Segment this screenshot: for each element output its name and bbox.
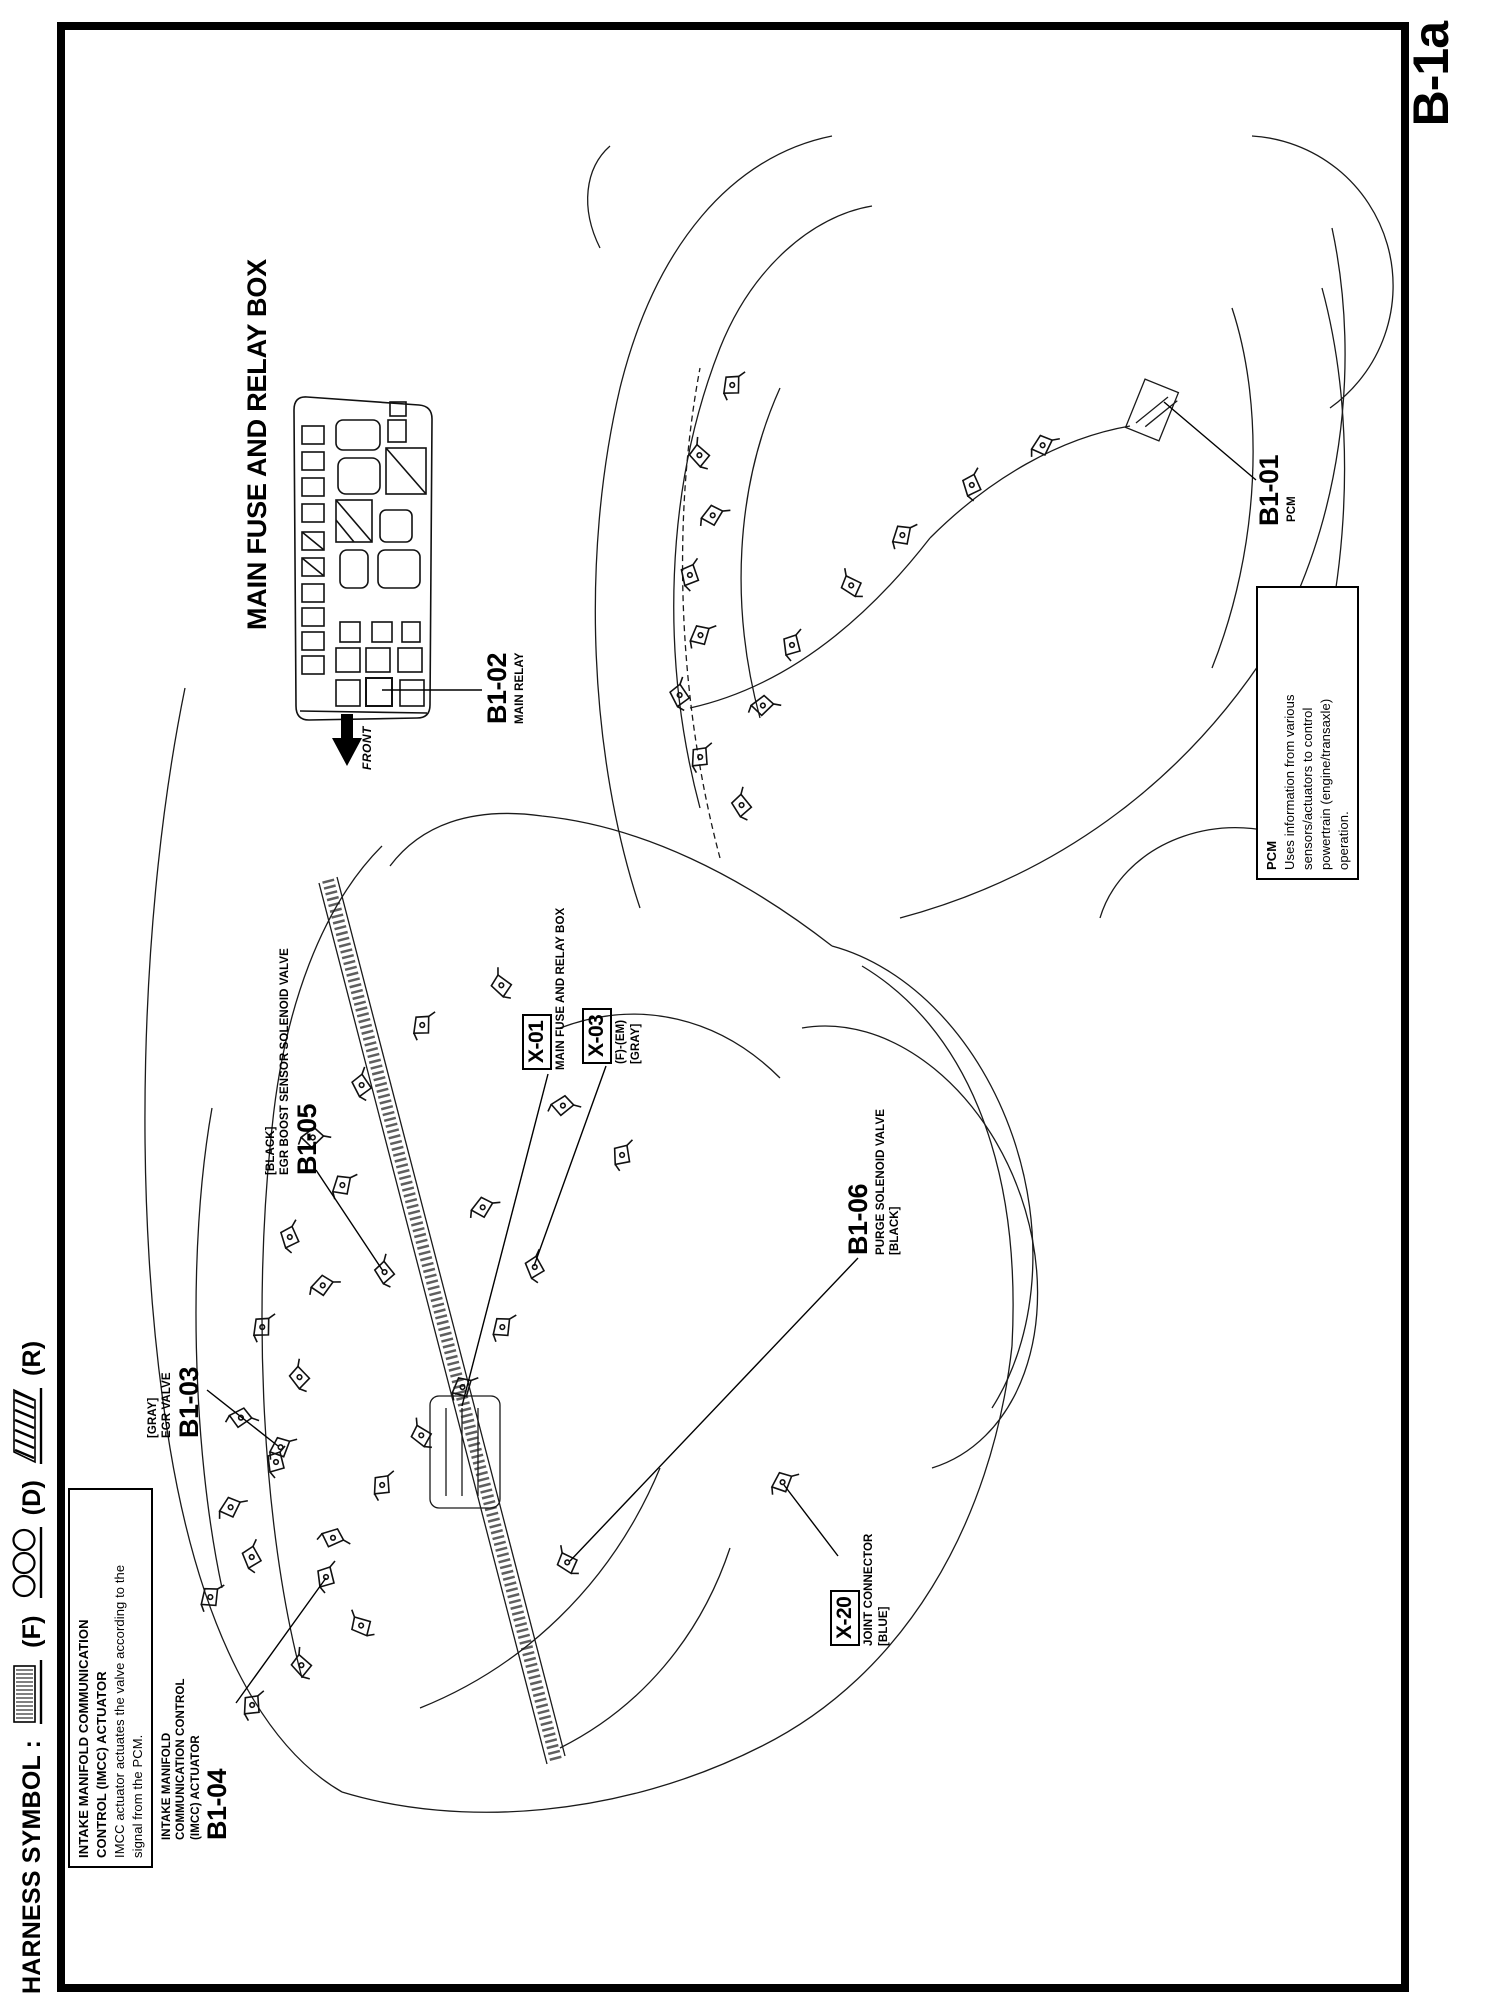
connector-code: B1-05	[294, 948, 322, 1175]
connector-name: PCM	[1285, 455, 1299, 522]
connector-name: (IMCC) ACTUATOR	[189, 1678, 203, 1840]
callout-x-20: X-20 JOINT CONNECTOR [BLUE]	[830, 1534, 891, 1646]
connector-name: MAIN FUSE AND RELAY BOX	[554, 908, 568, 1070]
connector-color: [BLACK]	[264, 948, 278, 1175]
callout-b1-01: B1-01 PCM	[1256, 455, 1299, 526]
imcc-note-box: INTAKE MANIFOLD COMMUNICATION CONTROL (I…	[68, 1488, 153, 1868]
imcc-note-title-1: INTAKE MANIFOLD COMMUNICATION	[75, 1498, 93, 1858]
pcm-note-body-1: Uses information from various	[1281, 596, 1299, 870]
pcm-note-body-2: sensors/actuators to control	[1299, 596, 1317, 870]
callout-b1-06: B1-06 PURGE SOLENOID VALVE [BLACK]	[845, 1109, 902, 1255]
fuse-box-title: MAIN FUSE AND RELAY BOX	[242, 259, 273, 630]
connector-code: B1-03	[176, 1367, 204, 1438]
fuse-box-drawing	[294, 397, 432, 720]
pcm-note-body-4: operation.	[1335, 596, 1353, 870]
callout-b1-02: B1-02 MAIN RELAY	[484, 653, 527, 725]
pcm-note-title: PCM	[1263, 596, 1281, 870]
imcc-note-body-1: IMCC actuator actuates the valve accordi…	[111, 1498, 129, 1858]
leader-lines	[207, 402, 1256, 1703]
pcm-note-box: PCM Uses information from various sensor…	[1256, 586, 1359, 880]
callout-b1-05: [BLACK] EGR BOOST SENSOR SOLENOID VALVE …	[264, 948, 321, 1175]
connector-name: EGR BOOST SENSOR SOLENOID VALVE	[278, 948, 292, 1175]
connector-code: X-03	[582, 1008, 612, 1064]
connector-name: (F)-(EM)	[614, 1008, 628, 1064]
connector-color: [BLACK]	[888, 1109, 902, 1255]
callout-b1-04: INTAKE MANIFOLD COMMUNICATION CONTROL (I…	[160, 1678, 232, 1840]
connector-code: X-01	[522, 1014, 552, 1070]
connector-name: PURGE SOLENOID VALVE	[874, 1109, 888, 1255]
scanned-manual-page: HARNESS SYMBOL : (F)	[0, 0, 1504, 2008]
callout-b1-03: [GRAY] EGR VALVE B1-03	[146, 1367, 203, 1438]
connector-code: B1-04	[204, 1678, 232, 1840]
imcc-note-title-2: CONTROL (IMCC) ACTUATOR	[93, 1498, 111, 1858]
callout-x-01: X-01 MAIN FUSE AND RELAY BOX	[522, 908, 569, 1070]
car-connector-cluster	[667, 368, 1060, 823]
landscape-page: HARNESS SYMBOL : (F)	[0, 0, 1504, 2008]
connector-name: EGR VALVE	[160, 1367, 174, 1438]
connector-color: [GRAY]	[146, 1367, 160, 1438]
connector-name: COMMUNICATION CONTROL	[174, 1678, 188, 1840]
connector-name: JOINT CONNECTOR	[862, 1534, 876, 1646]
connector-color: [GRAY]	[629, 1008, 643, 1064]
callout-x-03: X-03 (F)-(EM) [GRAY]	[582, 1008, 643, 1064]
connector-name: MAIN RELAY	[513, 653, 527, 725]
connector-code: B1-01	[1256, 455, 1284, 526]
connector-code: B1-02	[484, 653, 512, 725]
imcc-note-body-2: signal from the PCM.	[129, 1498, 147, 1858]
connector-code: X-20	[830, 1590, 860, 1646]
pcm-note-body-3: powertrain (engine/transaxle)	[1317, 596, 1335, 870]
front-label: FRONT	[360, 726, 374, 770]
front-arrow-icon	[332, 714, 362, 766]
connector-name: INTAKE MANIFOLD	[160, 1678, 174, 1840]
connector-color: [BLUE]	[877, 1534, 891, 1646]
connector-code: B1-06	[845, 1109, 873, 1255]
page-tab: B-1a	[1402, 22, 1460, 156]
